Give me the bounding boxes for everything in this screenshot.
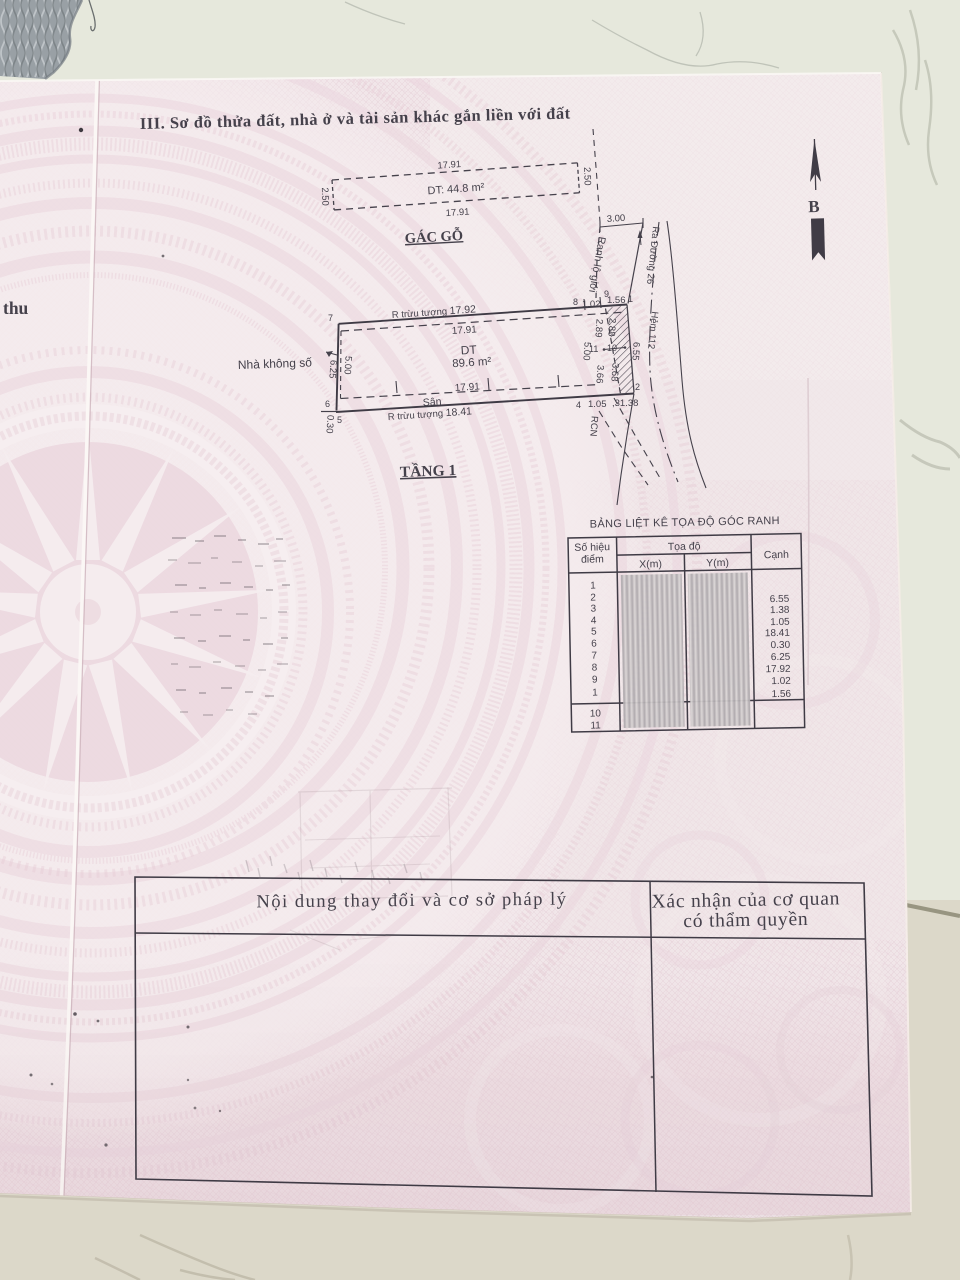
svg-text:11: 11 bbox=[589, 344, 598, 354]
svg-text:có thẩm quyền: có thẩm quyền bbox=[683, 909, 809, 932]
svg-text:Tọa độ: Tọa độ bbox=[668, 540, 701, 553]
svg-text:8: 8 bbox=[573, 297, 578, 307]
svg-text:2.88: 2.88 bbox=[605, 318, 617, 337]
svg-text:DT: DT bbox=[460, 342, 478, 357]
svg-text:5: 5 bbox=[591, 626, 597, 637]
svg-text:18.41: 18.41 bbox=[765, 628, 791, 639]
svg-text:17.92: 17.92 bbox=[765, 664, 791, 675]
svg-text:điểm: điểm bbox=[581, 553, 604, 565]
svg-text:Sân: Sân bbox=[422, 396, 442, 409]
svg-text:6: 6 bbox=[325, 399, 330, 409]
svg-text:5.00: 5.00 bbox=[341, 356, 353, 375]
svg-text:3.66: 3.66 bbox=[593, 365, 605, 384]
svg-text:3.00: 3.00 bbox=[606, 213, 625, 225]
svg-text:4: 4 bbox=[576, 400, 581, 410]
svg-text:6.55: 6.55 bbox=[629, 342, 641, 361]
svg-text:10: 10 bbox=[607, 343, 617, 353]
svg-text:1.56: 1.56 bbox=[771, 689, 791, 700]
svg-text:7: 7 bbox=[328, 313, 333, 323]
svg-text:17.91: 17.91 bbox=[451, 324, 477, 337]
svg-text:Y(m): Y(m) bbox=[706, 557, 729, 569]
svg-text:2.89: 2.89 bbox=[592, 319, 604, 338]
svg-text:2.50: 2.50 bbox=[319, 187, 331, 206]
svg-text:10: 10 bbox=[590, 708, 602, 719]
svg-text:6.55: 6.55 bbox=[770, 594, 790, 605]
svg-text:RCN: RCN bbox=[587, 416, 599, 437]
svg-text:7: 7 bbox=[591, 650, 597, 661]
svg-text:,31.38: ,31.38 bbox=[612, 398, 638, 409]
svg-text:1: 1 bbox=[590, 580, 596, 591]
svg-text:17.91: 17.91 bbox=[454, 381, 480, 394]
svg-text:1.05: 1.05 bbox=[588, 399, 607, 410]
svg-text:17.91: 17.91 bbox=[437, 159, 461, 172]
svg-text:Nội dung thay đổi và cơ sở phá: Nội dung thay đổi và cơ sở pháp lý bbox=[256, 890, 567, 913]
svg-text:17.91: 17.91 bbox=[445, 207, 469, 220]
svg-text:thu: thu bbox=[3, 298, 29, 318]
svg-text:TẦNG 1: TẦNG 1 bbox=[400, 461, 457, 481]
svg-text:9: 9 bbox=[592, 674, 598, 685]
svg-text:6.25: 6.25 bbox=[771, 652, 791, 663]
svg-text:8: 8 bbox=[592, 662, 598, 673]
svg-text:1.05: 1.05 bbox=[770, 617, 790, 628]
svg-text:1.56: 1.56 bbox=[607, 295, 626, 306]
svg-text:0.30: 0.30 bbox=[323, 415, 335, 434]
svg-text:3.68: 3.68 bbox=[608, 363, 620, 382]
svg-text:X(m): X(m) bbox=[639, 558, 662, 570]
svg-text:Nhà không số: Nhà không số bbox=[238, 355, 313, 372]
svg-text:Số hiệu: Số hiệu bbox=[574, 541, 610, 554]
svg-text:4: 4 bbox=[591, 615, 597, 626]
svg-text:2: 2 bbox=[590, 592, 596, 603]
svg-text:1: 1 bbox=[592, 687, 598, 698]
svg-text:2: 2 bbox=[635, 382, 640, 392]
svg-text:11: 11 bbox=[590, 720, 601, 731]
svg-text:1.02: 1.02 bbox=[771, 676, 791, 687]
svg-text:2.50: 2.50 bbox=[581, 167, 593, 186]
svg-text:6.25: 6.25 bbox=[326, 360, 338, 379]
svg-text:Xác nhận của cơ quan: Xác nhận của cơ quan bbox=[651, 888, 840, 912]
svg-text:6: 6 bbox=[591, 638, 597, 649]
svg-text:0.30: 0.30 bbox=[771, 640, 791, 651]
svg-text:5: 5 bbox=[337, 415, 342, 425]
svg-text:B: B bbox=[808, 197, 820, 216]
svg-text:3: 3 bbox=[590, 603, 596, 614]
svg-text:1.38: 1.38 bbox=[770, 605, 790, 616]
svg-text:Cạnh: Cạnh bbox=[764, 549, 789, 561]
